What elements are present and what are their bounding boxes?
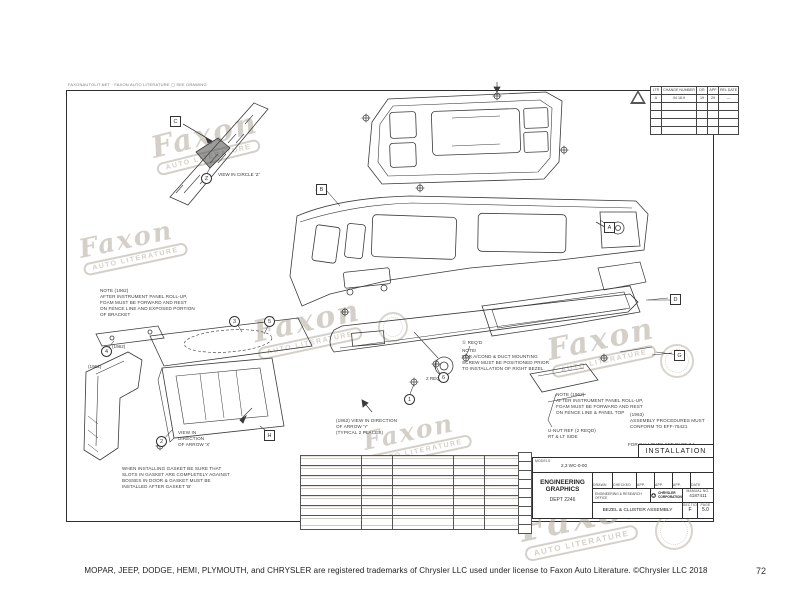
- callout-box-b: B: [316, 184, 327, 195]
- revision-table: LTR CHANGE NUMBER DR APP REL DATE A 04 1…: [650, 86, 739, 135]
- title-block: MODELS 2,3 WC-0-00 ENGINEERING GRAPHICS …: [532, 457, 714, 519]
- rev-header: APP: [707, 87, 718, 95]
- callout-circle-5: 5: [264, 316, 275, 327]
- drawing-title: BEZEL & CLUSTER ASSEMBLY: [603, 508, 673, 513]
- col-drawn: DRAWN: [593, 483, 607, 487]
- callout-circle-6: 6: [438, 372, 449, 383]
- callout-box-a: A: [604, 222, 615, 233]
- cluster-bezel: [368, 92, 562, 184]
- mount-bracket-1962: [96, 326, 164, 346]
- callout-box-g: G: [674, 350, 685, 361]
- label-view-y: (1962) VIEW IN DIRECTION OF ARROW 'Y' (T…: [336, 418, 406, 436]
- rev-header: REL DATE: [718, 87, 738, 95]
- cowl-panel-piece: [170, 103, 268, 205]
- callout-circle-z: Z: [201, 173, 212, 184]
- section-value: F: [683, 507, 697, 513]
- rev-cell: 29: [707, 95, 718, 103]
- callout-circle-2: 2: [156, 436, 167, 447]
- parts-index-strip: [518, 452, 532, 534]
- label-view-x: VIEW IN DIRECTION OF ARROW 'X': [178, 430, 218, 448]
- callout-circle-4: 4: [101, 346, 112, 357]
- note-gasket: WHEN INSTALLING GASKET BE SURE THAT SLOT…: [122, 466, 257, 490]
- callout-box-c: C: [170, 116, 181, 127]
- rev-cell: —: [718, 95, 738, 103]
- scanned-manual-page: { "watermark": { "word": "Faxon", "subti…: [0, 0, 792, 612]
- rev-cell: 19: [696, 95, 707, 103]
- direction-arrows: [240, 82, 500, 423]
- models-value: 2,3 WC-0-00: [561, 463, 587, 468]
- rev-cell: A: [651, 95, 662, 103]
- chrysler-pentastar-logo: [651, 491, 656, 500]
- note-left-1962: NOTE (1962) AFTER INSTRUMENT PANEL ROLL-…: [100, 288, 215, 318]
- models-label: MODELS: [535, 459, 551, 463]
- page-number: 72: [756, 566, 766, 576]
- label-view-z: VIEW IN CIRCLE 'Z': [218, 172, 260, 177]
- callout-box-h: H: [264, 430, 275, 441]
- right-end-brackets: [598, 262, 672, 355]
- note-duct: NOTE! FOR A/COND & DUCT MOUNTING SCREW M…: [462, 348, 574, 372]
- rev-cell: 04 18.9: [662, 95, 697, 103]
- instrument-panel-body: [290, 196, 648, 306]
- org-name-line1: ENGINEERING: [533, 479, 592, 486]
- rev-header: LTR: [651, 87, 662, 95]
- rev-header: CHANGE NUMBER: [662, 87, 697, 95]
- callout-circle-3: 3: [229, 316, 240, 327]
- rev-header: DR: [696, 87, 707, 95]
- parts-list-table: [300, 455, 528, 530]
- trademark-footer: MOPAR, JEEP, DODGE, HEMI, PLYMOUTH, and …: [0, 566, 792, 575]
- label-year-1962: (1962): [88, 364, 101, 369]
- revision-warning-triangle: [630, 90, 646, 104]
- note-unut: U-NUT REF (2 REQD) RT & LT SIDE: [548, 428, 618, 440]
- page-value: 5.0: [698, 507, 713, 513]
- office-label: ENGINEERING & RESEARCH OFFICE: [593, 492, 650, 500]
- brand-label: CHRYSLER CORPORATION: [658, 492, 682, 499]
- col-checked: CHECKED: [613, 483, 631, 487]
- callout-circle-1: 1: [404, 394, 415, 405]
- manual-no-value: 4187411: [683, 493, 713, 498]
- col-app2: APP.: [655, 483, 663, 487]
- col-date: DATE: [691, 483, 701, 487]
- org-dept: DEPT 2246: [533, 497, 592, 503]
- label-year-1962: (1962): [112, 344, 125, 349]
- callout-box-d: D: [670, 294, 681, 305]
- installation-label: INSTALLATION: [646, 448, 707, 455]
- note-duct-req: ① REQ'D: [462, 340, 572, 346]
- col-app3: APP.: [673, 483, 681, 487]
- col-app1: APP.: [637, 483, 645, 487]
- note-assy-1963: (1963) ASSEMBLY PROCEDURES MUST CONFORM …: [630, 412, 710, 430]
- org-name-line2: GRAPHICS: [533, 486, 592, 493]
